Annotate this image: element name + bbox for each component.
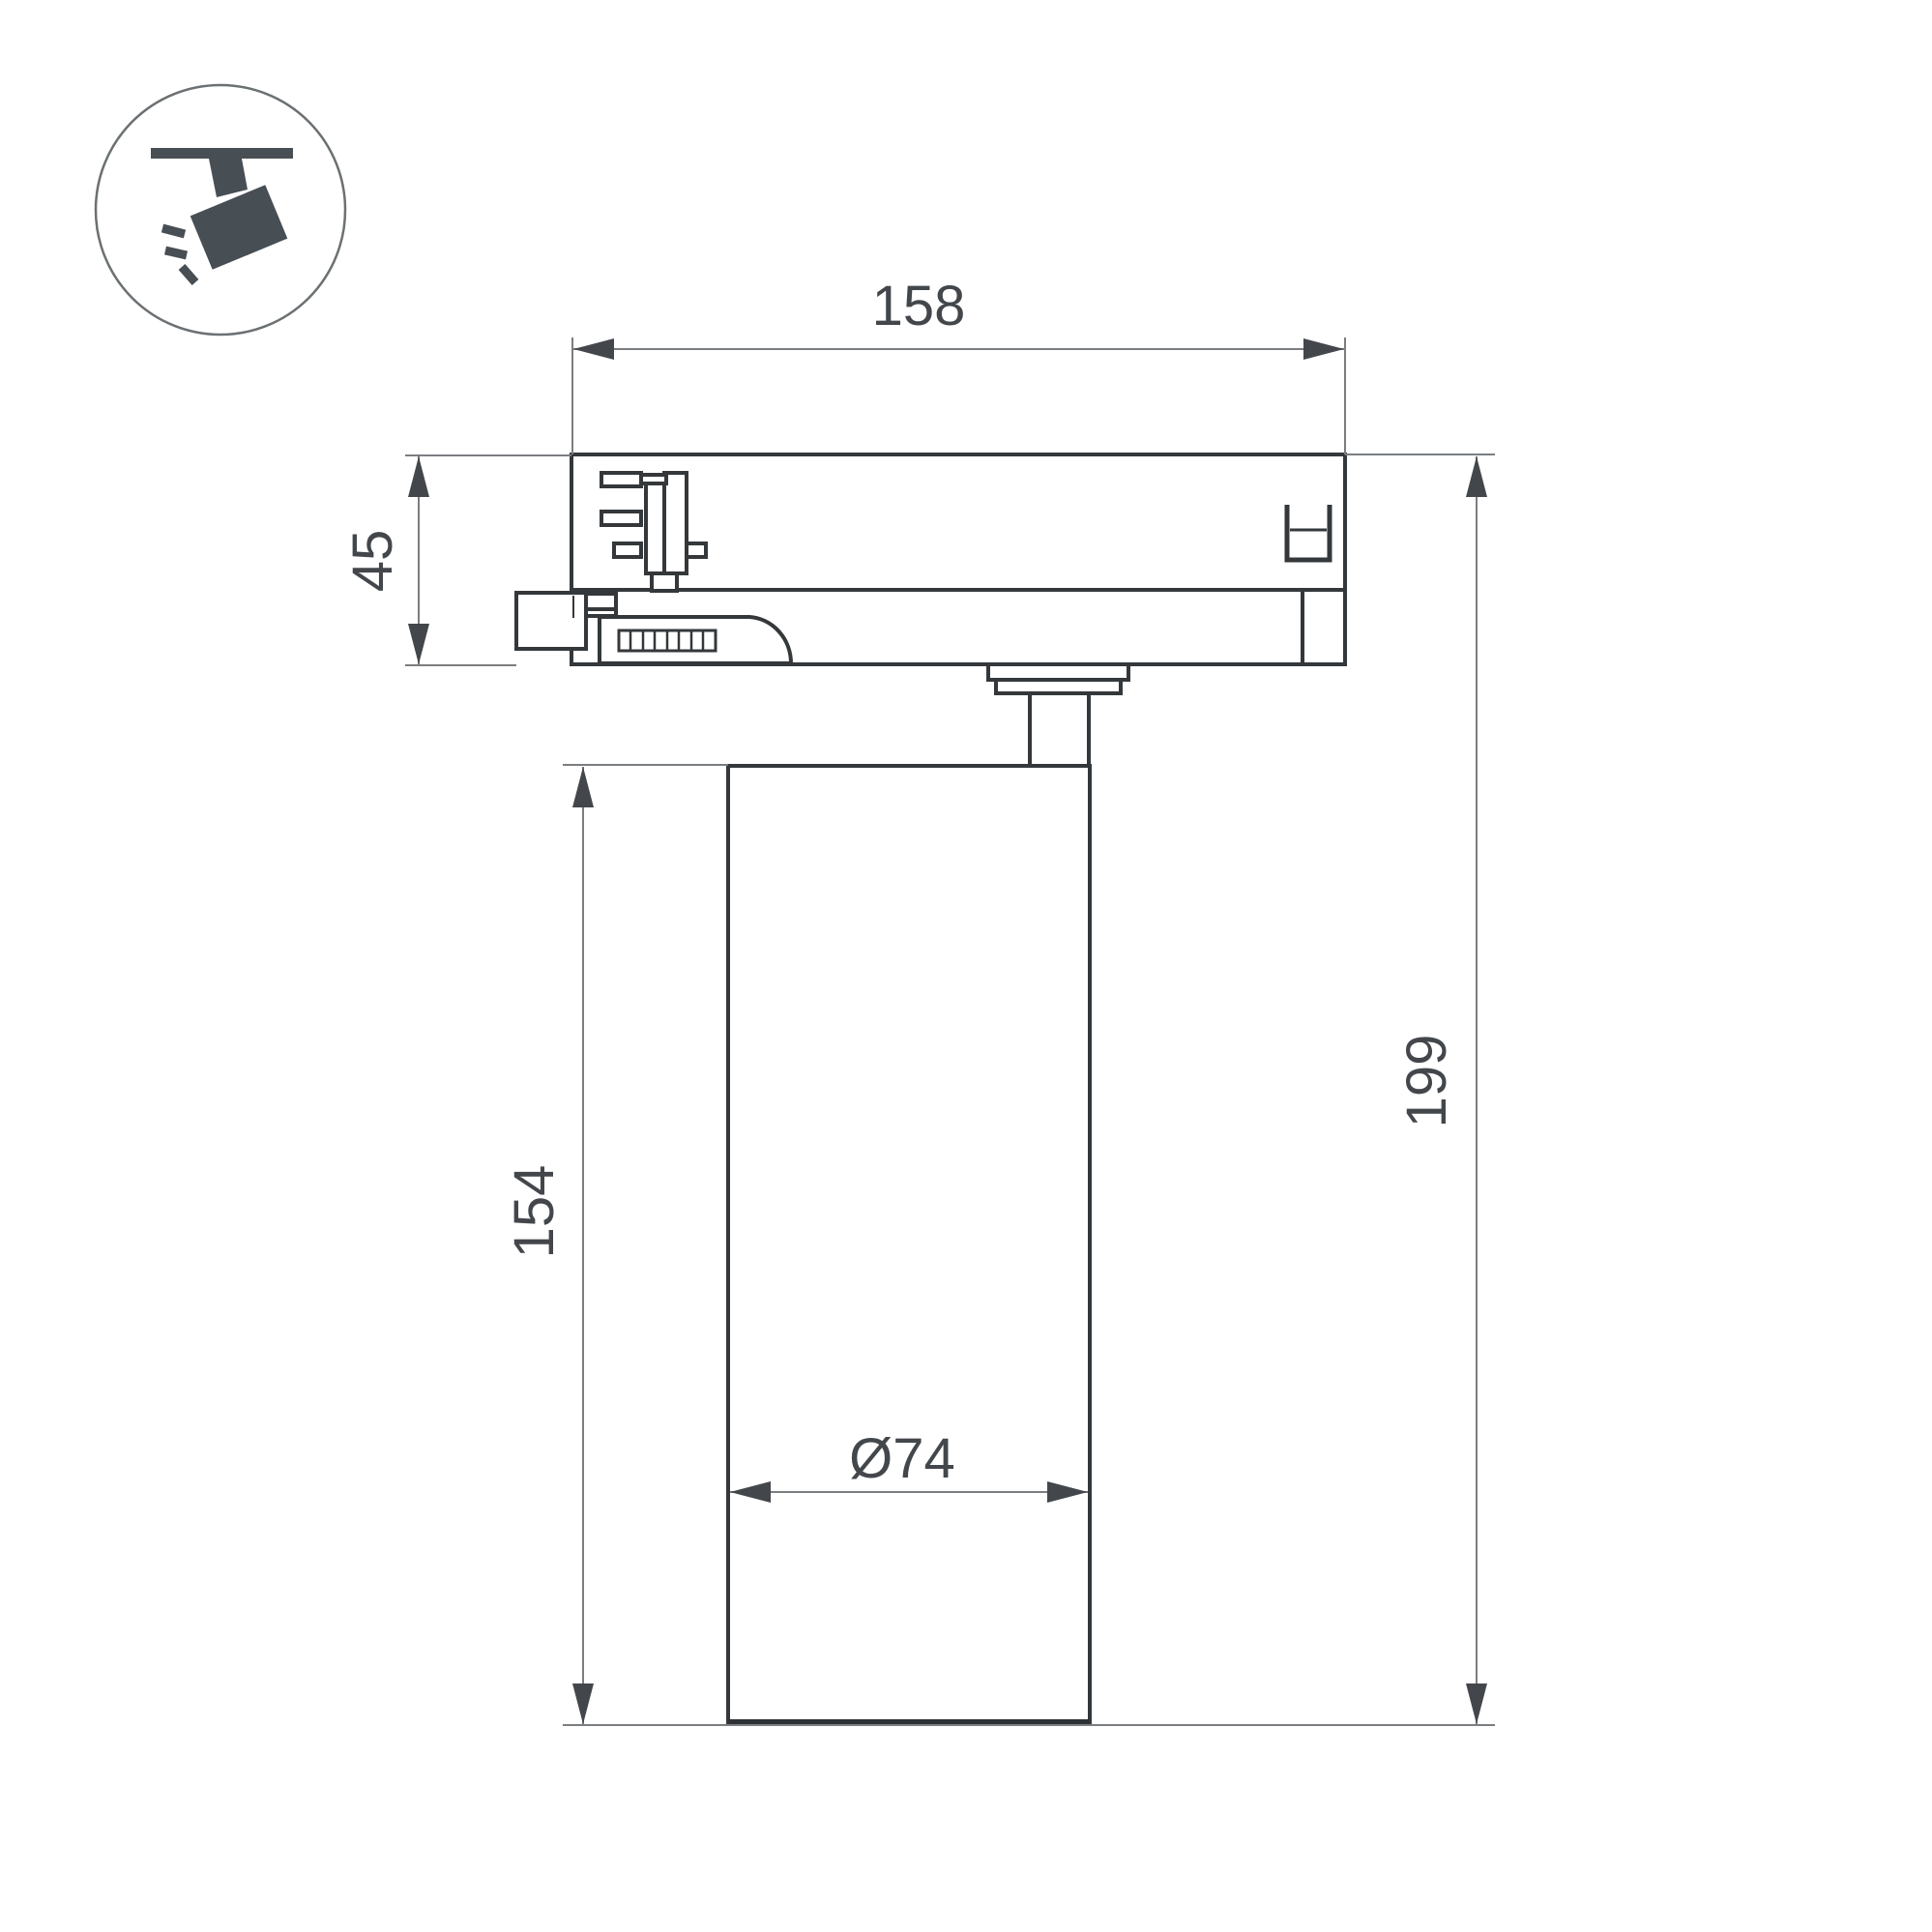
lamp-body xyxy=(728,766,1090,1723)
stem xyxy=(1030,693,1089,766)
locking-lever xyxy=(600,617,791,663)
mount-plate-upper xyxy=(988,664,1128,680)
dimension-body-height: 154 xyxy=(503,765,728,1724)
dim-label-body-diameter: Ø74 xyxy=(849,1427,955,1490)
icon-track-bar xyxy=(151,148,293,159)
technical-drawing: 158 45 154 199 Ø74 xyxy=(0,0,1932,1932)
dim-label-overall-height: 199 xyxy=(1395,1035,1458,1128)
mount-stem xyxy=(988,664,1128,766)
dim-label-body-height: 154 xyxy=(503,1165,566,1259)
fixture-drawing xyxy=(516,454,1345,1723)
dim-label-overall-width: 158 xyxy=(872,275,966,337)
dimension-overall-width: 158 xyxy=(572,275,1345,454)
mount-plate-lower xyxy=(996,680,1121,693)
track-spotlight-icon xyxy=(96,85,345,335)
dim-label-adapter-height: 45 xyxy=(341,530,404,593)
